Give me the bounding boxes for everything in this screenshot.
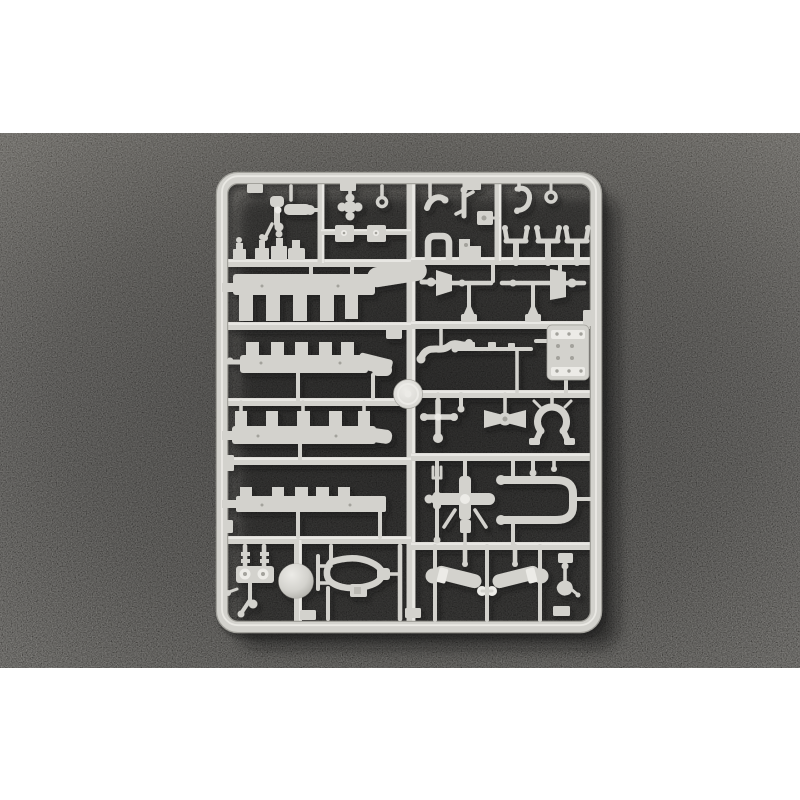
sprue-gate-disc <box>394 380 423 409</box>
sprue-photo-svg <box>0 0 800 800</box>
product-photo: Product photograph of a light grey injec… <box>0 0 800 800</box>
ball-part <box>279 564 314 599</box>
